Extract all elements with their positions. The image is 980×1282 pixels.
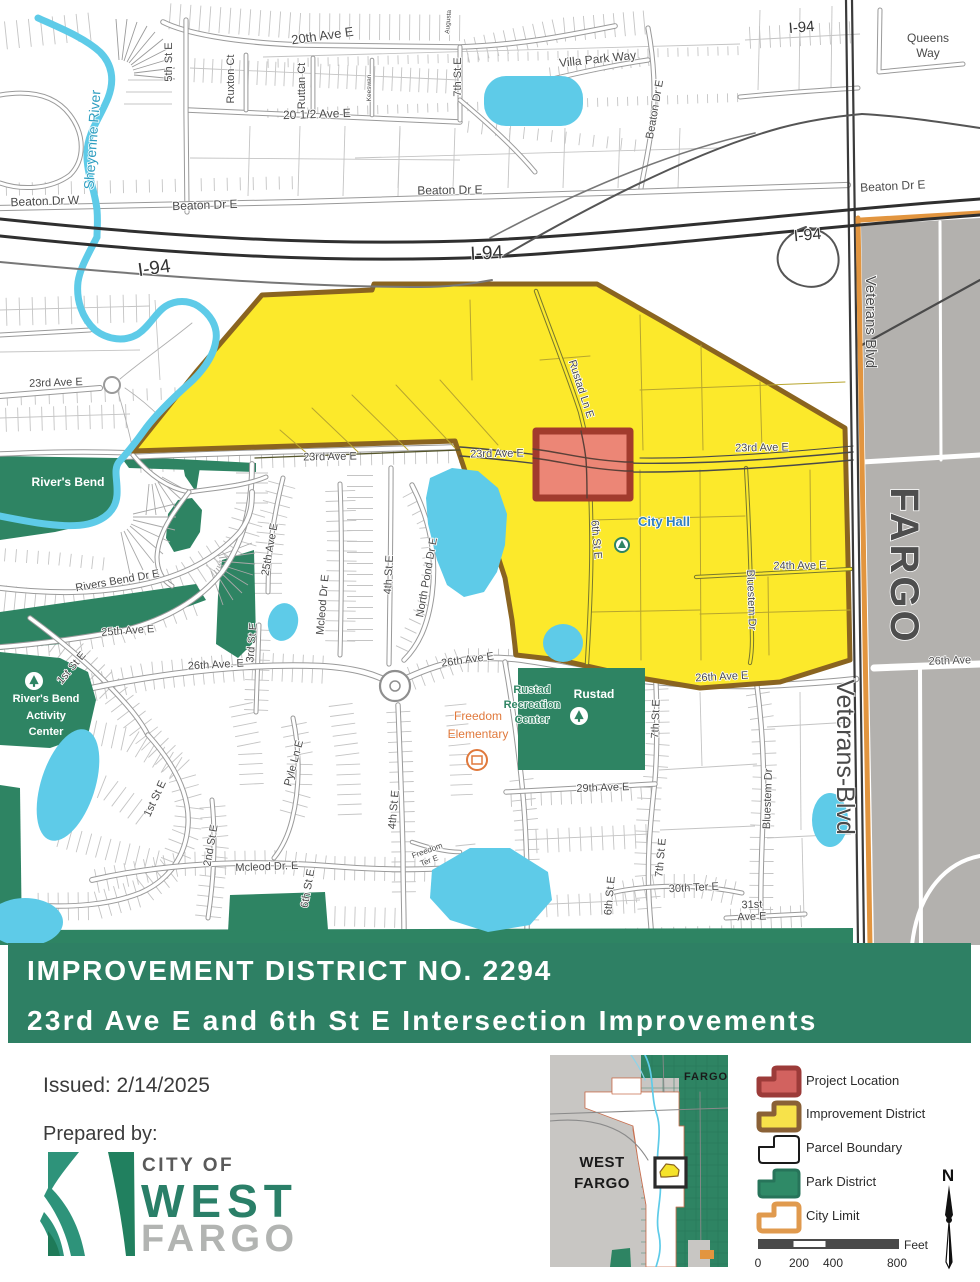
svg-text:Parcel Boundary: Parcel Boundary — [806, 1140, 903, 1155]
svg-text:200: 200 — [789, 1256, 809, 1270]
svg-text:FARGO: FARGO — [684, 1071, 728, 1083]
svg-text:N: N — [942, 1166, 954, 1185]
svg-text:Feet: Feet — [904, 1238, 929, 1252]
svg-text:4th St E: 4th St E — [382, 555, 396, 595]
svg-text:23rd Ave E: 23rd Ave E — [303, 451, 357, 464]
svg-text:Freedom: Freedom — [454, 709, 502, 723]
svg-text:Rustad: Rustad — [574, 687, 615, 701]
svg-text:FARGO: FARGO — [574, 1175, 630, 1192]
svg-text:20 1/2 Ave E: 20 1/2 Ave E — [283, 106, 351, 122]
svg-text:Bluestem Dr: Bluestem Dr — [744, 569, 758, 630]
svg-text:Way: Way — [916, 46, 940, 60]
svg-text:23rd Ave E: 23rd Ave E — [470, 448, 524, 461]
svg-text:Project Location: Project Location — [806, 1073, 899, 1088]
svg-text:31st: 31st — [741, 899, 762, 912]
svg-text:7th St E: 7th St E — [649, 699, 662, 739]
svg-text:Issued: 2/14/2025: Issued: 2/14/2025 — [43, 1074, 210, 1097]
svg-text:24th Ave E: 24th Ave E — [773, 560, 826, 573]
svg-text:7th St E: 7th St E — [452, 57, 464, 96]
svg-text:800: 800 — [887, 1256, 907, 1270]
svg-text:Ruxton Ct: Ruxton Ct — [225, 55, 237, 104]
svg-text:CITY OF: CITY OF — [142, 1155, 234, 1176]
svg-text:I-94: I-94 — [788, 18, 815, 37]
svg-text:I-94: I-94 — [470, 242, 504, 265]
svg-text:400: 400 — [823, 1256, 843, 1270]
svg-text:Activity: Activity — [26, 710, 67, 722]
svg-text:Ruttan Ct: Ruttan Ct — [296, 63, 308, 109]
svg-text:Veterans Blvd: Veterans Blvd — [862, 276, 879, 369]
svg-text:Center: Center — [515, 714, 551, 726]
svg-text:Ave E: Ave E — [737, 910, 767, 923]
svg-text:Bluestem Dr: Bluestem Dr — [761, 768, 775, 829]
svg-text:Prepared by:: Prepared by: — [43, 1123, 158, 1145]
svg-text:I-94: I-94 — [793, 226, 822, 245]
svg-text:Beaton Dr E: Beaton Dr E — [172, 197, 238, 213]
svg-text:Park District: Park District — [806, 1174, 876, 1189]
svg-text:23rd Ave E: 23rd Ave E — [29, 376, 83, 390]
svg-text:FARGO: FARGO — [141, 1218, 299, 1260]
svg-text:City Limit: City Limit — [806, 1208, 860, 1223]
svg-text:0: 0 — [755, 1256, 762, 1270]
svg-text:Beaton Dr W: Beaton Dr W — [10, 193, 80, 209]
svg-text:IMPROVEMENT DISTRICT NO. 2294: IMPROVEMENT DISTRICT NO. 2294 — [27, 955, 552, 986]
svg-text:23rd Ave E: 23rd Ave E — [735, 442, 789, 455]
svg-text:Improvement District: Improvement District — [806, 1106, 926, 1121]
svg-text:WEST: WEST — [579, 1154, 624, 1171]
svg-text:City Hall: City Hall — [638, 514, 690, 529]
svg-text:River's Bend: River's Bend — [32, 475, 105, 489]
svg-text:River's Bend: River's Bend — [13, 693, 80, 705]
svg-text:Recreation: Recreation — [504, 699, 561, 711]
svg-text:Veterans-Blvd: Veterans-Blvd — [831, 679, 859, 835]
svg-text:29th Ave E: 29th Ave E — [576, 781, 629, 795]
svg-text:Queens: Queens — [907, 31, 949, 45]
svg-text:5th St E: 5th St E — [163, 42, 175, 81]
svg-text:Keeswan: Keeswan — [366, 74, 373, 101]
svg-text:Mcleod Dr. E: Mcleod Dr. E — [235, 860, 298, 874]
svg-text:26th Ave: 26th Ave — [928, 654, 971, 667]
svg-text:Beaton Dr E: Beaton Dr E — [417, 182, 483, 197]
svg-text:Elementary: Elementary — [448, 727, 509, 741]
svg-text:Rustad: Rustad — [513, 684, 550, 696]
svg-text:23rd Ave E and 6th St E Inters: 23rd Ave E and 6th St E Intersection Imp… — [27, 1005, 818, 1036]
svg-text:FARGO: FARGO — [882, 487, 926, 644]
svg-text:Center: Center — [29, 726, 65, 738]
